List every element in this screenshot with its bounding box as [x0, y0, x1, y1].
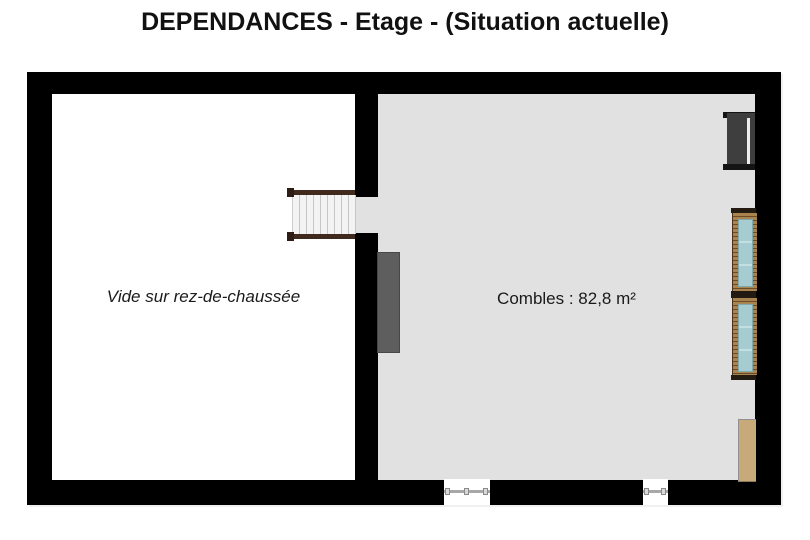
stairs-rail-top-post [287, 188, 294, 197]
middle-wall-opening [355, 197, 378, 233]
dark-furniture-panel [727, 113, 755, 170]
roof-window-lower-glass [738, 304, 753, 372]
page-title: DEPENDANCES - Etage - (Situation actuell… [0, 8, 810, 37]
window-pane-marker [445, 488, 450, 495]
room-attic [378, 94, 755, 480]
dark-panel-highlight [747, 118, 750, 164]
window-pane-marker [644, 488, 649, 495]
roof-window-upper-glass [738, 219, 753, 287]
dark-panel-cap-bottom [723, 164, 755, 170]
window-pane-marker [483, 488, 488, 495]
roof-window-cap-bottom [731, 375, 756, 380]
stairs-rail-bottom-post [287, 232, 294, 241]
left-room-label: Vide sur rez-de-chaussée [52, 287, 355, 307]
floor-plan-page: DEPENDANCES - Etage - (Situation actuell… [0, 0, 810, 540]
stairs-rail-top [288, 190, 355, 195]
stairs-rail-bottom [288, 234, 355, 239]
window-pane-marker [661, 488, 666, 495]
stairs-treads [292, 195, 356, 234]
right-room-label: Combles : 82,8 m² [378, 289, 755, 309]
bottom-window-small [643, 479, 668, 505]
bottom-window-large [444, 479, 490, 505]
window-pane-marker [464, 488, 469, 495]
cabinet-bottom-right [738, 419, 756, 482]
